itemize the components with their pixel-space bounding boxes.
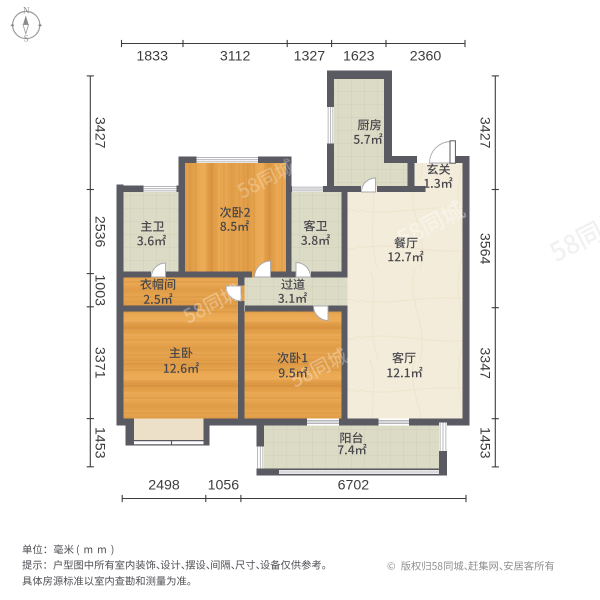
svg-text:1623: 1623	[343, 49, 375, 65]
svg-text:1327: 1327	[294, 49, 326, 65]
svg-text:1453: 1453	[477, 427, 493, 459]
svg-text:1833: 1833	[136, 49, 168, 65]
svg-text:3427: 3427	[92, 117, 108, 149]
svg-text:1003: 1003	[92, 274, 108, 306]
svg-text:2536: 2536	[92, 216, 108, 248]
svg-text:3564: 3564	[477, 233, 493, 265]
svg-text:2360: 2360	[410, 49, 442, 65]
svg-text:N: N	[23, 5, 30, 15]
svg-text:3427: 3427	[477, 117, 493, 149]
svg-text:1453: 1453	[92, 427, 108, 459]
svg-text:3112: 3112	[220, 49, 251, 65]
svg-text:6702: 6702	[338, 478, 370, 494]
svg-text:S: S	[24, 34, 29, 44]
svg-text:3371: 3371	[92, 347, 108, 379]
svg-text:3347: 3347	[477, 347, 493, 379]
svg-text:1056: 1056	[208, 478, 240, 494]
svg-text:2498: 2498	[148, 478, 180, 494]
